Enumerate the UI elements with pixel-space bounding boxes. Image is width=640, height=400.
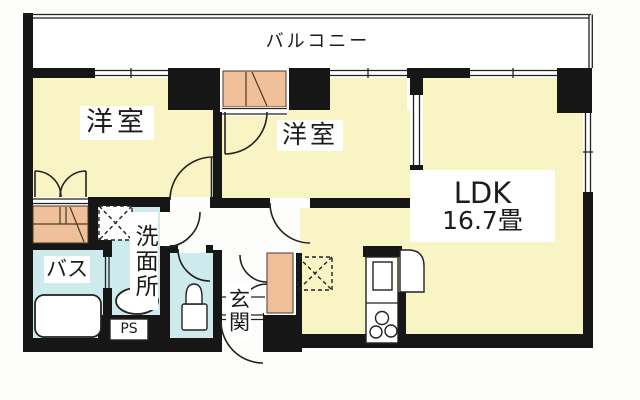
washroom-label: 洗面所 <box>130 212 158 310</box>
washroom-door <box>165 212 200 247</box>
toilet-tank <box>182 304 207 330</box>
corner-pillar <box>557 68 592 113</box>
stove-burner <box>370 326 382 338</box>
stove-burner <box>376 312 389 325</box>
wall-segment <box>103 288 112 315</box>
wall-segment <box>263 313 302 352</box>
wall-segment <box>290 334 592 348</box>
bath-label: バス <box>44 256 90 283</box>
shoe-cabinet-door-top <box>240 255 267 282</box>
bathtub <box>35 295 101 337</box>
kitchen-counter-end <box>400 250 424 292</box>
wall-segment <box>583 192 593 348</box>
western-room-2-label: 洋室 <box>277 120 343 151</box>
wall-segment <box>23 13 33 352</box>
wall-segment <box>222 198 270 208</box>
wall-segment <box>213 250 222 352</box>
western-room-2-floor-window-strip <box>330 78 407 110</box>
sliding-door-room2-ldk <box>410 95 423 165</box>
ldk-label: LDK <box>454 178 512 208</box>
pipe-space-label: PS <box>112 321 146 338</box>
stove-burner <box>385 325 397 337</box>
wall-segment <box>160 197 170 212</box>
kitchen-sink <box>373 262 392 290</box>
wall-segment <box>287 68 330 110</box>
kitchen-wall-stub <box>363 246 402 257</box>
western-room-1-label: 洋室 <box>80 106 154 140</box>
ldk-label-box: LDK 16.7畳 <box>410 170 555 242</box>
ldk-area-label: 16.7畳 <box>442 208 523 234</box>
balcony-label: バルコニー <box>248 30 388 55</box>
wall-segment <box>213 110 222 197</box>
wall-segment <box>206 245 213 253</box>
kitchen-half-wall <box>398 292 406 336</box>
wall-segment <box>168 68 222 110</box>
wall-segment <box>407 68 470 78</box>
wall-segment <box>310 198 423 208</box>
wall-segment <box>160 246 170 352</box>
shoe-cabinet <box>267 253 293 313</box>
floor-plan: バルコニー 洋室 洋室 LDK 16.7畳 洗面所 バス 玄関 PS <box>0 0 640 400</box>
wall-segment <box>33 68 95 78</box>
entrance-label: 玄関 <box>226 283 251 338</box>
wall-segment <box>410 78 423 95</box>
toilet-bowl <box>186 284 202 304</box>
